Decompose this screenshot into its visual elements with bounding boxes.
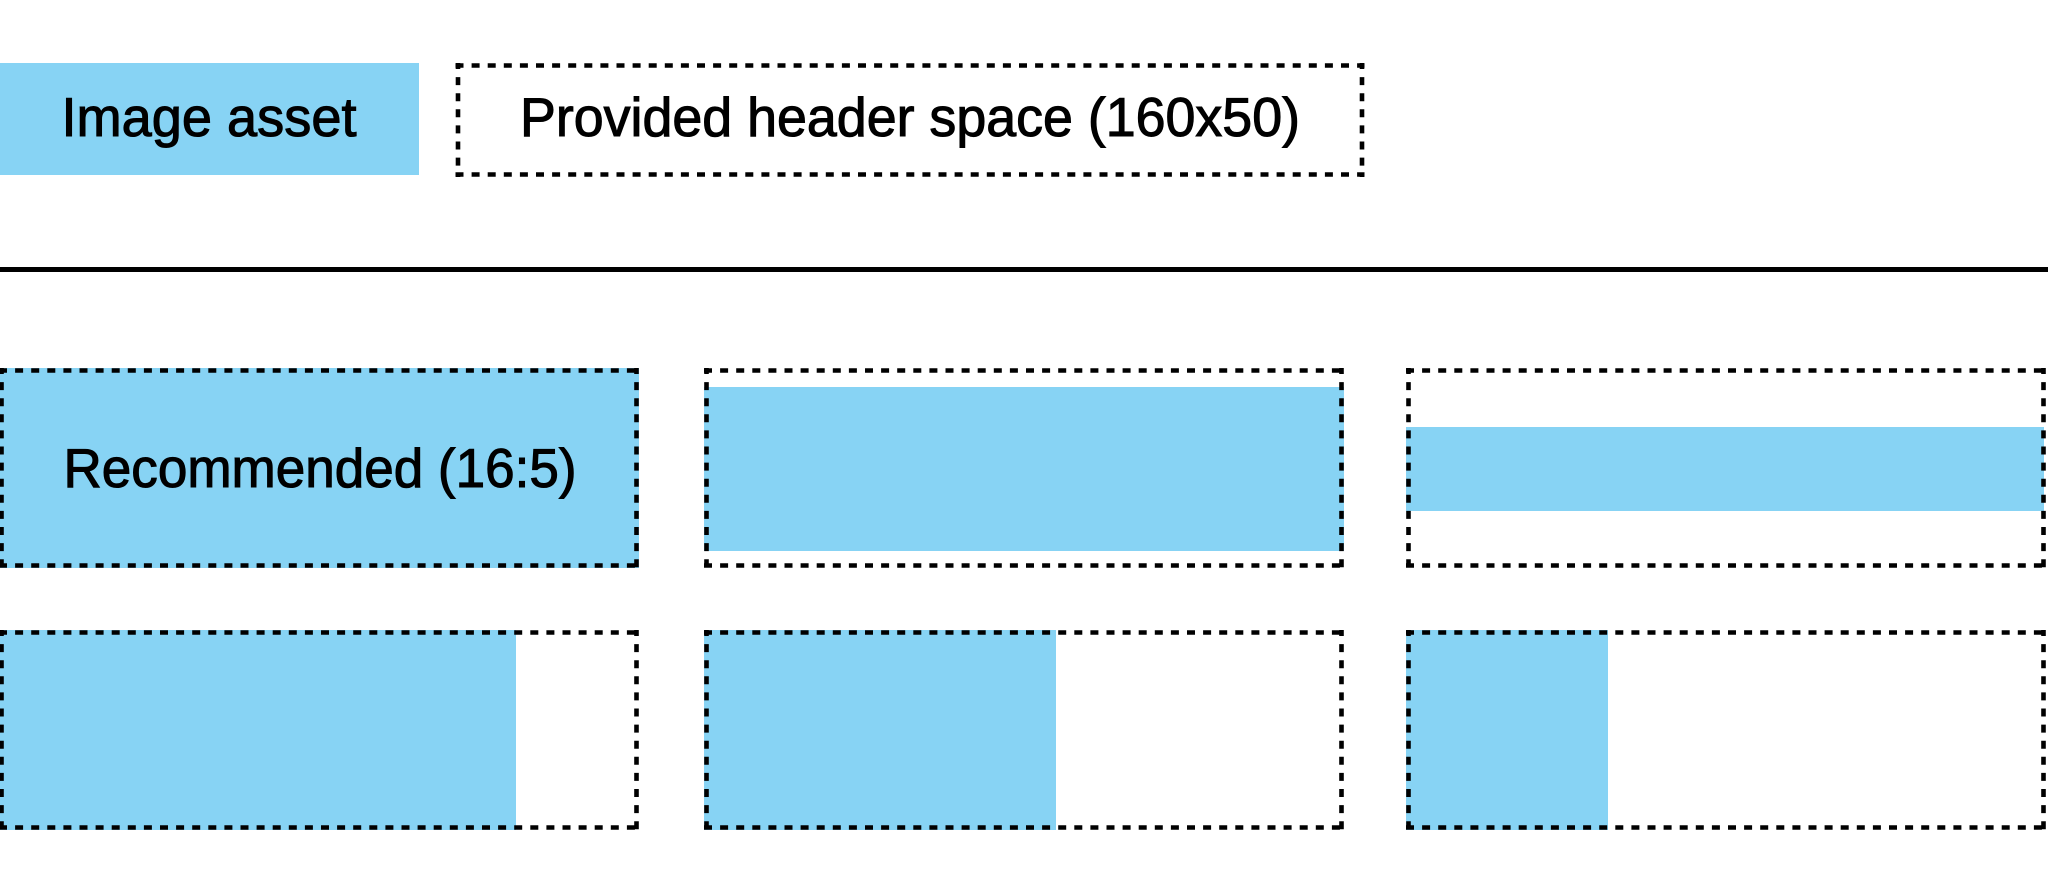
svg-text:Image asset: Image asset: [62, 86, 357, 148]
svg-text:Recommended (16:5): Recommended (16:5): [64, 437, 577, 499]
svg-text:Provided header space (160x50): Provided header space (160x50): [520, 86, 1300, 148]
